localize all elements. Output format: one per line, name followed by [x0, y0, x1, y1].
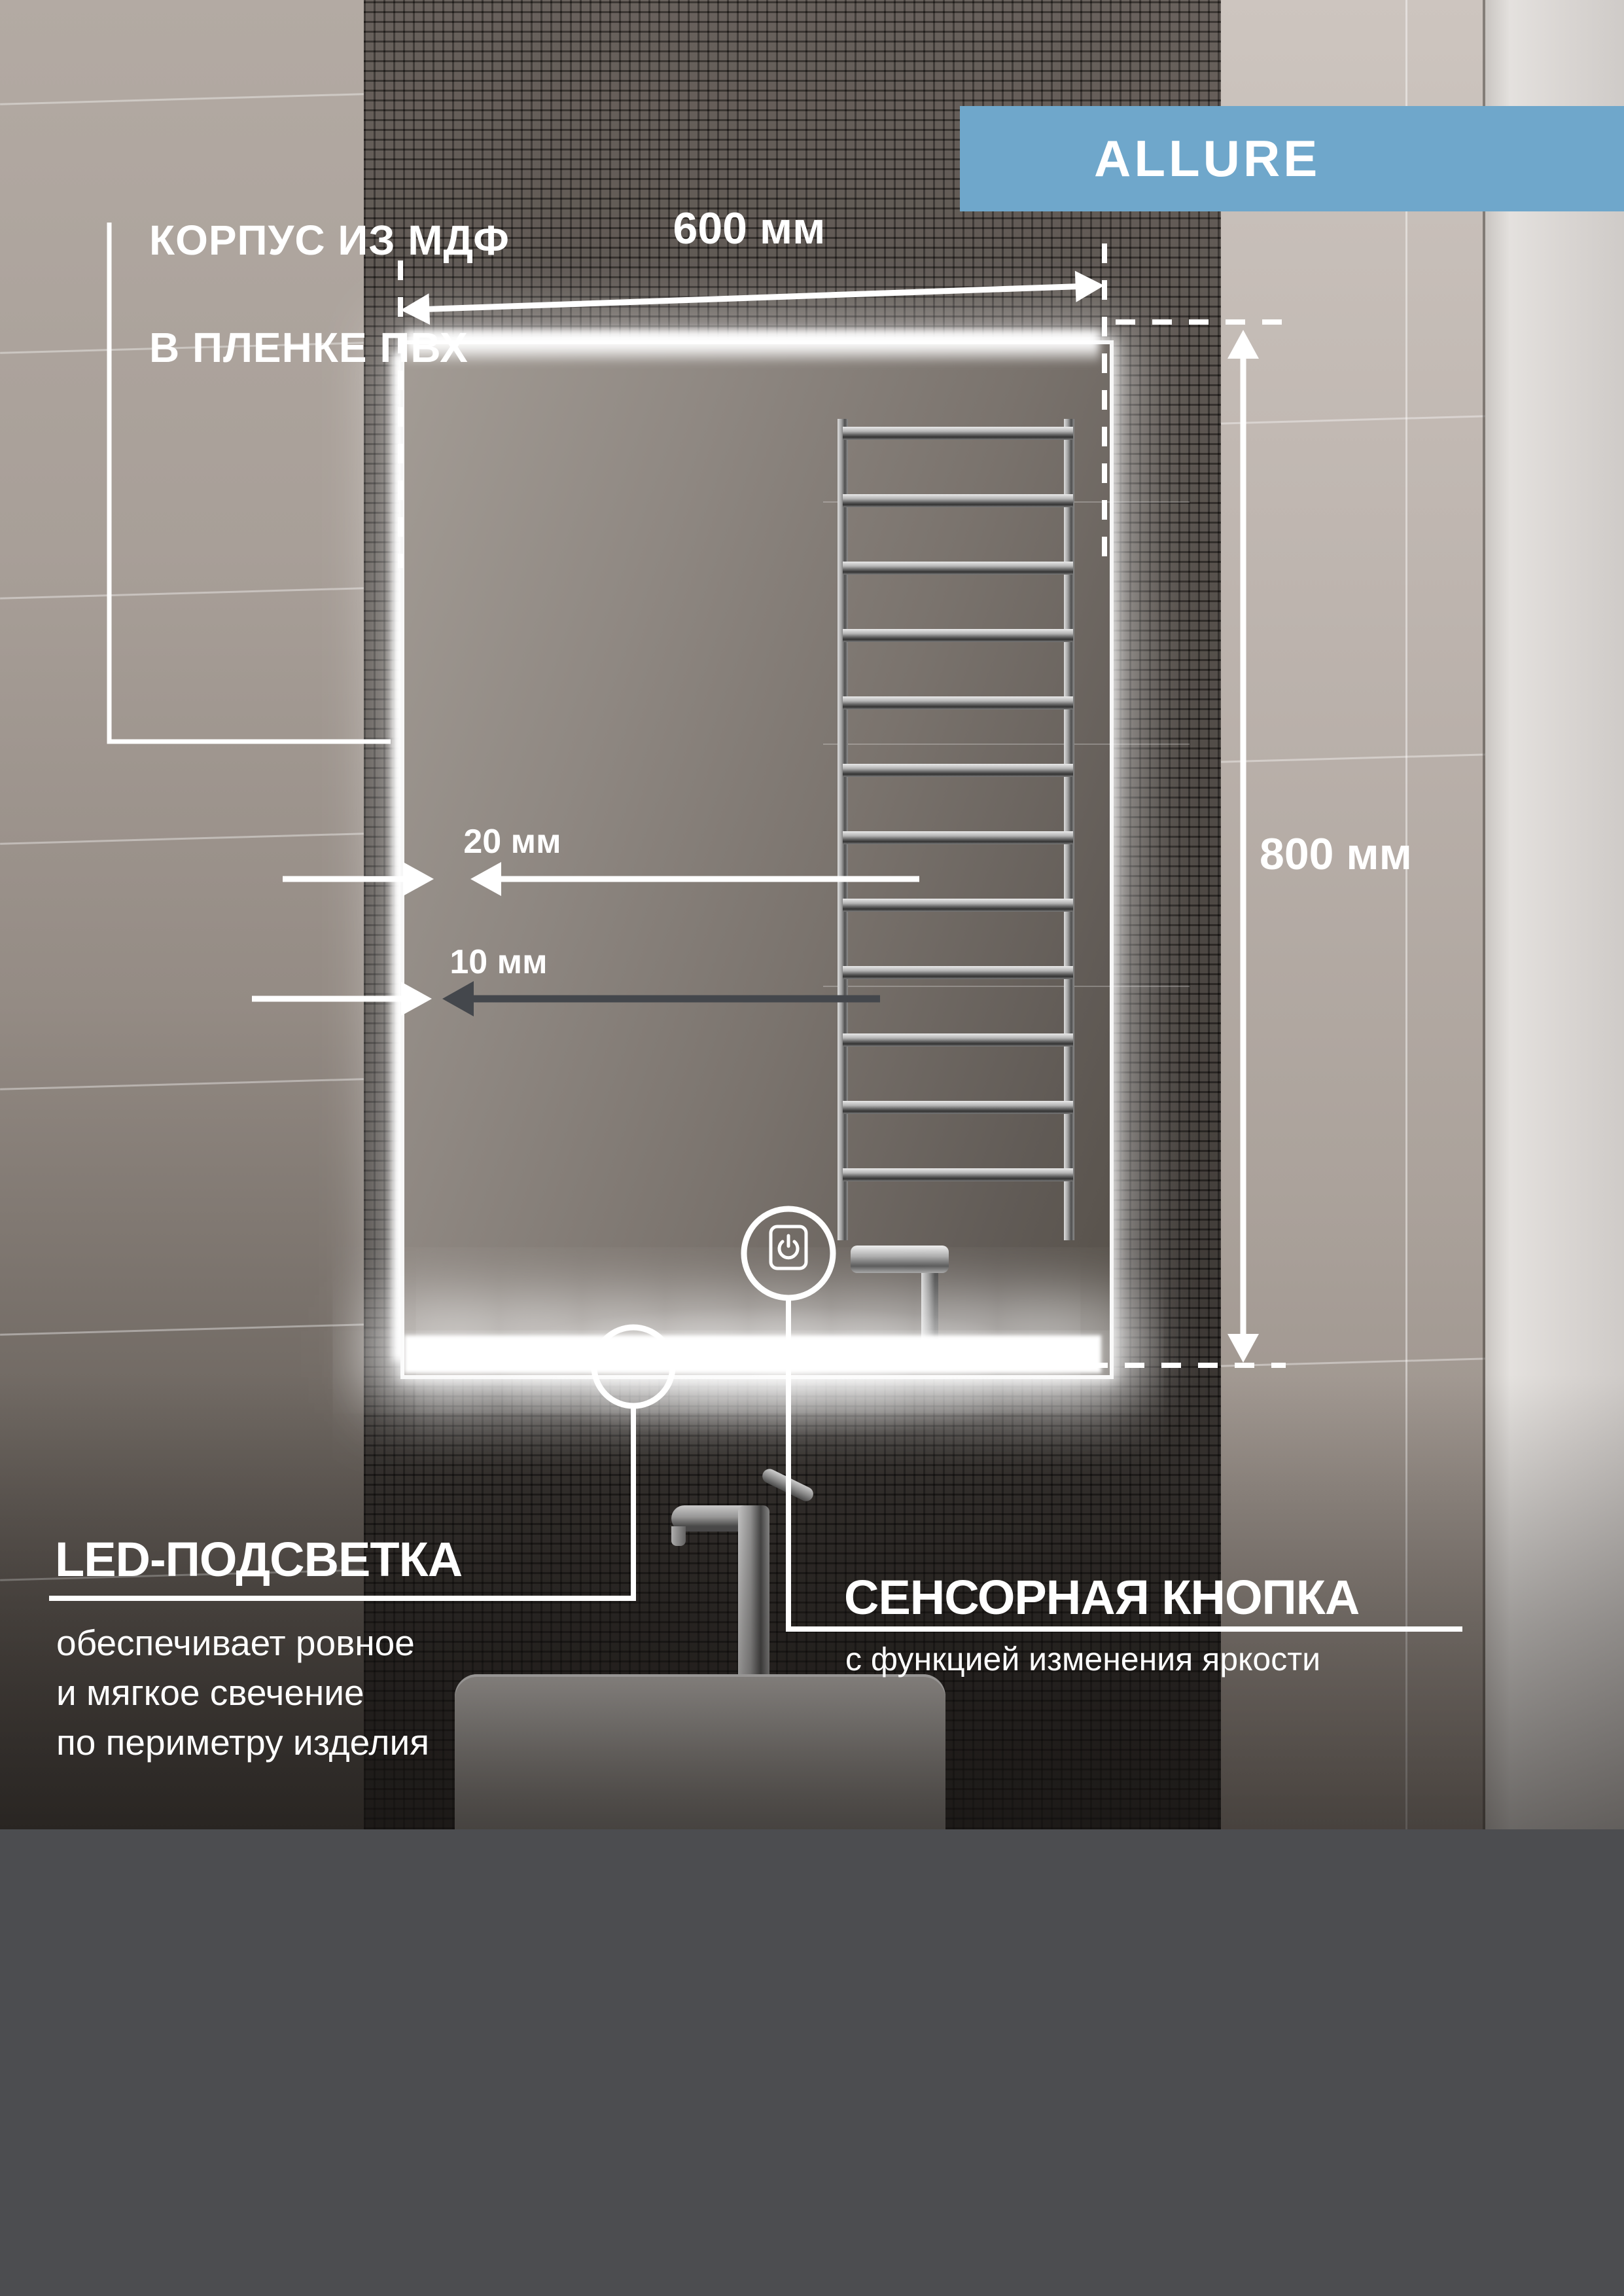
body-material-line2: В ПЛЕНКЕ ПВХ: [149, 324, 468, 371]
height-dimension-label: 800 мм: [1260, 829, 1412, 880]
touch-callout-subtitle: с функцией изменения яркости: [845, 1640, 1320, 1678]
glow-dimension-label: 20 мм: [434, 822, 591, 861]
touch-callout-title: СЕНСОРНАЯ КНОПКА: [844, 1570, 1359, 1625]
led-callout-title: LED-ПОДСВЕТКА: [55, 1532, 462, 1587]
edge-width-arrows: [252, 981, 880, 1016]
body-material-line1: КОРПУС ИЗ МДФ: [149, 217, 510, 264]
glow-width-arrows: [283, 862, 919, 896]
height-dimension: [1227, 330, 1259, 1363]
product-name: ALLURE: [960, 106, 1624, 211]
edge-dimension-label: 10 мм: [420, 942, 577, 982]
body-material-label: КОРПУС ИЗ МДФ В ПЛЕНКЕ ПВХ: [149, 213, 510, 374]
features-panel: 2 kW Сенсорная кнопка с функцией изменен…: [0, 1829, 1624, 2296]
led-callout-description: обеспечивает ровное и мягкое свечение по…: [56, 1618, 429, 1767]
width-dimension-label: 600 мм: [586, 203, 913, 254]
product-name-badge: ALLURE: [960, 106, 1624, 211]
product-infographic: КОРПУС ИЗ МДФ В ПЛЕНКЕ ПВХ ALLURE 600 мм…: [0, 0, 1624, 2296]
led-callout-circle: [594, 1327, 673, 1406]
mirror-touch-button: [771, 1227, 806, 1268]
touch-callout-circle: [744, 1209, 833, 1298]
